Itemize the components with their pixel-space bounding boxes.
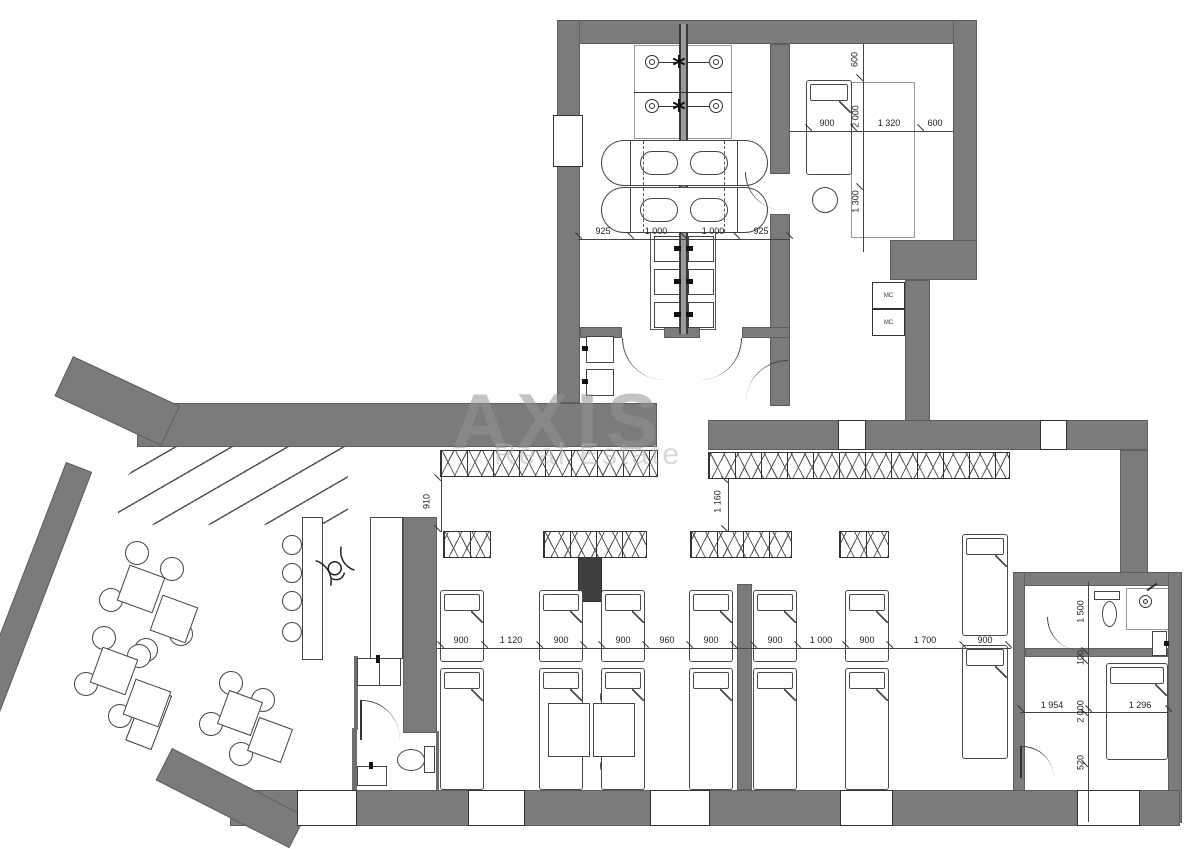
service-counter: [370, 517, 403, 659]
window: [838, 420, 866, 450]
blanket-fold: [1155, 684, 1167, 696]
dimension-label: 960: [649, 636, 685, 645]
exterior-wall: [0, 462, 92, 780]
dimension-label: 2 000: [1077, 694, 1086, 730]
blanket-fold: [784, 689, 796, 701]
bathtub-basin: [640, 151, 678, 175]
dimension-label: 1 000: [803, 636, 839, 645]
dimension-label: 1 296: [1122, 701, 1158, 710]
bed: [845, 590, 889, 662]
window: [297, 790, 357, 826]
window: [1077, 790, 1140, 826]
service-shaft: MC: [872, 282, 905, 309]
blanket-fold: [720, 689, 732, 701]
exterior-wall: [1168, 572, 1182, 823]
dimension-line: [578, 239, 790, 240]
bed: [440, 668, 484, 790]
shower-fixture-icon: [709, 55, 723, 69]
exterior-wall: [770, 44, 790, 174]
bed: [753, 590, 797, 662]
exterior-wall: [1120, 450, 1148, 574]
bed-pillow: [849, 672, 885, 689]
dimension-line: [1088, 582, 1089, 822]
shower-fixture-icon: [709, 99, 723, 113]
bed: [689, 590, 733, 662]
bed: [601, 590, 645, 662]
dimension-label: 900: [967, 636, 1003, 645]
exterior-wall: [403, 517, 437, 733]
dimension-label: 1 160: [714, 484, 723, 520]
dimension-label: 1 300: [852, 184, 861, 220]
tap-icon: [582, 346, 588, 351]
bar-stool: [282, 622, 302, 642]
dimension-label: 600: [920, 119, 950, 128]
dimension-label: 900: [605, 636, 641, 645]
dimension-line: [437, 648, 1011, 649]
exterior-wall: [905, 280, 930, 426]
staircase: [118, 447, 348, 527]
bed-pillow: [543, 672, 579, 689]
tub-screen-dash: [724, 188, 725, 232]
fixture-line: [687, 106, 709, 107]
dimension-label: 1 120: [491, 636, 531, 645]
tap-icon: [674, 312, 681, 317]
exterior-wall: [1025, 648, 1168, 657]
door-leaf: [360, 700, 362, 740]
dimension-line: [1020, 712, 1168, 713]
locker-unit: [839, 531, 889, 558]
service-shaft: MC: [872, 309, 905, 336]
exterior-wall: [742, 327, 790, 338]
bed: [845, 668, 889, 790]
blanket-fold: [876, 611, 888, 623]
bathtub-basin: [640, 198, 678, 222]
tap-icon: [686, 279, 693, 284]
blanket-fold: [784, 611, 796, 623]
exterior-wall: [708, 420, 1148, 450]
dimension-label: 1 500: [1077, 594, 1086, 630]
watermark-subtitle: Real Estate: [494, 438, 682, 472]
blanket-fold: [632, 689, 644, 701]
bathtub-basin: [690, 151, 728, 175]
shower-fixture-icon: [645, 99, 659, 113]
service-shaft-label: MC: [884, 320, 893, 326]
window: [553, 115, 583, 167]
shower-head-icon: [1139, 595, 1152, 608]
locker-unit: [443, 531, 491, 558]
tap-icon: [674, 246, 681, 251]
dimension-label: 1 700: [907, 636, 943, 645]
shower-cabin-divider: [634, 92, 732, 93]
dimension-line: [790, 131, 953, 132]
bed: [962, 645, 1008, 759]
closet-outline: [851, 82, 915, 238]
dimension-label: 520: [1077, 748, 1086, 778]
dimension-label: 925: [746, 227, 776, 236]
blanket-fold: [995, 666, 1007, 678]
shower-curtain-arc: [601, 140, 631, 186]
dining-table: [548, 703, 590, 757]
blanket-fold: [471, 611, 483, 623]
dimension-label: 910: [423, 487, 432, 517]
dimension-label: 900: [543, 636, 579, 645]
dimension-line: [728, 479, 729, 532]
floor-plan: AXIS Real Estate MC MC: [0, 0, 1200, 849]
sink: [357, 766, 387, 786]
bed-pillow: [849, 594, 885, 611]
tap-icon: [686, 246, 693, 251]
tub-screen-dash: [643, 188, 644, 232]
toilet-tank: [424, 746, 435, 773]
shower-area-outline: [1126, 588, 1169, 630]
blanket-fold: [632, 611, 644, 623]
bed: [440, 590, 484, 662]
bar-counter: [302, 517, 323, 660]
sink: [586, 336, 614, 363]
window: [650, 790, 710, 826]
bed-pillow: [693, 594, 729, 611]
blanket-fold: [720, 611, 732, 623]
blanket-fold: [839, 101, 851, 113]
exterior-wall: [557, 20, 977, 44]
exterior-wall: [1013, 572, 1025, 823]
tub-screen-dash: [724, 141, 725, 185]
dimension-label: 900: [693, 636, 729, 645]
blanket-fold: [570, 611, 582, 623]
bed-pillow: [1110, 667, 1164, 684]
door-arc: [1022, 746, 1054, 778]
dimension-label: 600: [851, 45, 860, 75]
tap-icon: [674, 279, 681, 284]
dimension-line: [863, 44, 864, 252]
bathtub-basin: [690, 198, 728, 222]
window: [840, 790, 893, 826]
bed-pillow: [966, 649, 1004, 666]
dimension-line: [441, 477, 442, 532]
bed-pillow: [810, 84, 848, 101]
blanket-fold: [471, 689, 483, 701]
blanket-fold: [876, 689, 888, 701]
round-stool: [812, 187, 838, 213]
dimension-label: 900: [443, 636, 479, 645]
dimension-label: 1 320: [870, 119, 908, 128]
bed-pillow: [543, 594, 579, 611]
bed-pillow: [444, 672, 480, 689]
bed: [753, 668, 797, 790]
blanket-fold: [570, 689, 582, 701]
bed: [962, 534, 1008, 636]
exterior-wall: [737, 584, 752, 790]
tub-screen-dash: [643, 141, 644, 185]
bed-pillow: [966, 538, 1004, 555]
locker-unit: [690, 531, 792, 558]
locker-unit: [543, 531, 647, 558]
bed-pillow: [444, 594, 480, 611]
dimension-label: 100: [1077, 645, 1086, 671]
dining-table: [593, 703, 635, 757]
dimension-label: 900: [757, 636, 793, 645]
locker-unit: [708, 452, 1010, 479]
dimension-label: 900: [849, 636, 885, 645]
bar-stool: [282, 563, 302, 583]
toilet-tank: [1094, 591, 1120, 600]
tap-icon: [686, 312, 693, 317]
chair: [125, 541, 149, 565]
window: [1040, 420, 1067, 450]
door-leaf: [1020, 746, 1022, 778]
dimension-label: 1 000: [695, 227, 731, 236]
exterior-wall: [54, 356, 180, 446]
shower-fixture-icon: [645, 55, 659, 69]
exterior-wall: [557, 20, 580, 403]
dimension-label: 900: [812, 119, 842, 128]
toilet: [397, 749, 425, 771]
service-shaft-label: MC: [884, 293, 893, 299]
bed-pillow: [693, 672, 729, 689]
bar-stool: [282, 591, 302, 611]
door-arc: [746, 360, 788, 402]
bed-pillow: [605, 594, 641, 611]
tap-icon: [1164, 641, 1169, 646]
partition-wall: [436, 731, 439, 790]
dimension-label: 2 000: [852, 99, 861, 135]
bed-pillow: [757, 672, 793, 689]
blanket-fold: [995, 555, 1007, 567]
fixture-line: [687, 62, 709, 63]
door-arc: [362, 700, 400, 740]
bed: [689, 668, 733, 790]
tap-icon: [369, 762, 373, 769]
exterior-wall: [953, 20, 977, 260]
exterior-wall: [890, 240, 977, 280]
door-arc: [700, 338, 742, 380]
dimension-label: 1 000: [638, 227, 674, 236]
bed-pillow: [605, 672, 641, 689]
door-arc: [622, 338, 664, 380]
bed: [539, 590, 583, 662]
dimension-label: 925: [588, 227, 618, 236]
dimension-label: 1 954: [1034, 701, 1070, 710]
window: [468, 790, 525, 826]
tap-icon: [376, 655, 380, 663]
toilet: [1102, 601, 1117, 627]
bed-pillow: [757, 594, 793, 611]
bar-stool: [282, 535, 302, 555]
